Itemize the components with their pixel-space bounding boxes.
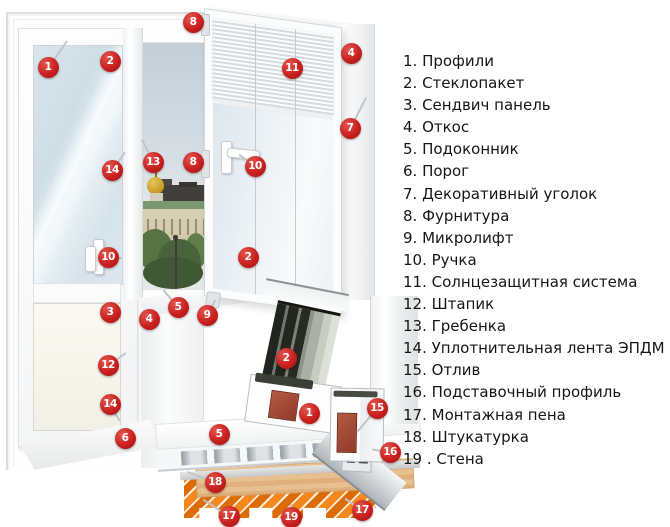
marker-2-glazing-section: 2 xyxy=(276,348,297,369)
marker-15-drip-sill: 15 xyxy=(367,398,388,419)
legend-item-14: 14. Уплотнительная лента ЭПДМ xyxy=(403,337,665,359)
legend-item-16: 16. Подставочный профиль xyxy=(403,381,665,403)
tree xyxy=(143,257,203,289)
marker-2-sash-glazing: 2 xyxy=(238,247,259,268)
legend-item-3: 3. Сендвич панель xyxy=(403,94,665,116)
legend-item-4: 4. Откос xyxy=(403,116,665,138)
legend-item-17: 17. Монтажная пена xyxy=(403,404,665,426)
city-roof-block xyxy=(179,182,197,187)
legend-item-19: 19 . Стена xyxy=(403,448,665,470)
marker-2-glazing-unit: 2 xyxy=(100,51,121,72)
legend-list: 1. Профили2. Стеклопакет3. Сендвич панел… xyxy=(403,50,665,470)
frame-mullion xyxy=(123,28,143,300)
marker-12-glazing-bead: 12 xyxy=(98,355,119,376)
marker-9-microlift: 9 xyxy=(197,305,218,326)
door-mid-rail xyxy=(33,283,121,303)
marker-5-sill-section: 5 xyxy=(209,424,230,445)
legend-item-8: 8. Фурнитура xyxy=(403,205,665,227)
marker-17-mounting-foam-left: 17 xyxy=(219,506,240,527)
legend-item-13: 13. Гребенка xyxy=(403,315,665,337)
sash-glazing-unit xyxy=(213,103,333,305)
marker-14-epdm-seal-top: 14 xyxy=(102,160,123,181)
church-gold-dome xyxy=(147,177,164,194)
marker-17-mounting-foam-right: 17 xyxy=(352,500,373,521)
legend-item-1: 1. Профили xyxy=(403,50,665,72)
marker-18-plaster: 18 xyxy=(205,472,226,493)
legend-item-2: 2. Стеклопакет xyxy=(403,72,665,94)
street-lamp xyxy=(175,239,177,289)
marker-1-profile-section: 1 xyxy=(299,403,320,424)
marker-5-window-sill: 5 xyxy=(168,297,189,318)
marker-4-slope-side: 4 xyxy=(139,309,160,330)
marker-11-sun-protection: 11 xyxy=(282,58,303,79)
marker-1-profiles: 1 xyxy=(38,57,59,78)
marker-19-wall: 19 xyxy=(281,507,302,527)
legend-item-10: 10. Ручка xyxy=(403,249,665,271)
marker-10-sash-handle: 10 xyxy=(245,156,266,177)
marker-8-hardware-middle: 8 xyxy=(183,152,204,173)
marker-16-support-profile: 16 xyxy=(380,442,401,463)
street-lamp-head xyxy=(173,235,178,240)
legend-item-5: 5. Подоконник xyxy=(403,138,665,160)
marker-4-slope-top: 4 xyxy=(341,43,362,64)
legend-item-6: 6. Порог xyxy=(403,160,665,182)
marker-3-sandwich-panel: 3 xyxy=(100,302,121,323)
legend-item-11: 11. Солнцезащитная система xyxy=(403,271,665,293)
diagram-stage: 1281147138141021059341214652115161817191… xyxy=(0,0,670,527)
legend-item-7: 7. Декоративный уголок xyxy=(403,183,665,205)
marker-8-hardware-top: 8 xyxy=(183,12,204,33)
marker-13-comb: 13 xyxy=(143,152,164,173)
legend-item-12: 12. Штапик xyxy=(403,293,665,315)
legend-item-9: 9. Микролифт xyxy=(403,227,665,249)
seal-channel xyxy=(333,391,377,398)
marker-7-decorative-corner: 7 xyxy=(340,118,361,139)
steel-reinforcement xyxy=(268,390,300,422)
marker-6-threshold: 6 xyxy=(115,428,136,449)
marker-14-epdm-seal-bottom: 14 xyxy=(100,394,121,415)
legend-item-15: 15. Отлив xyxy=(403,359,665,381)
steel-reinforcement xyxy=(337,413,358,453)
marker-10-door-handle: 10 xyxy=(98,247,119,268)
legend-item-18: 18. Штукатурка xyxy=(403,426,665,448)
door-handle-lever xyxy=(85,246,96,272)
